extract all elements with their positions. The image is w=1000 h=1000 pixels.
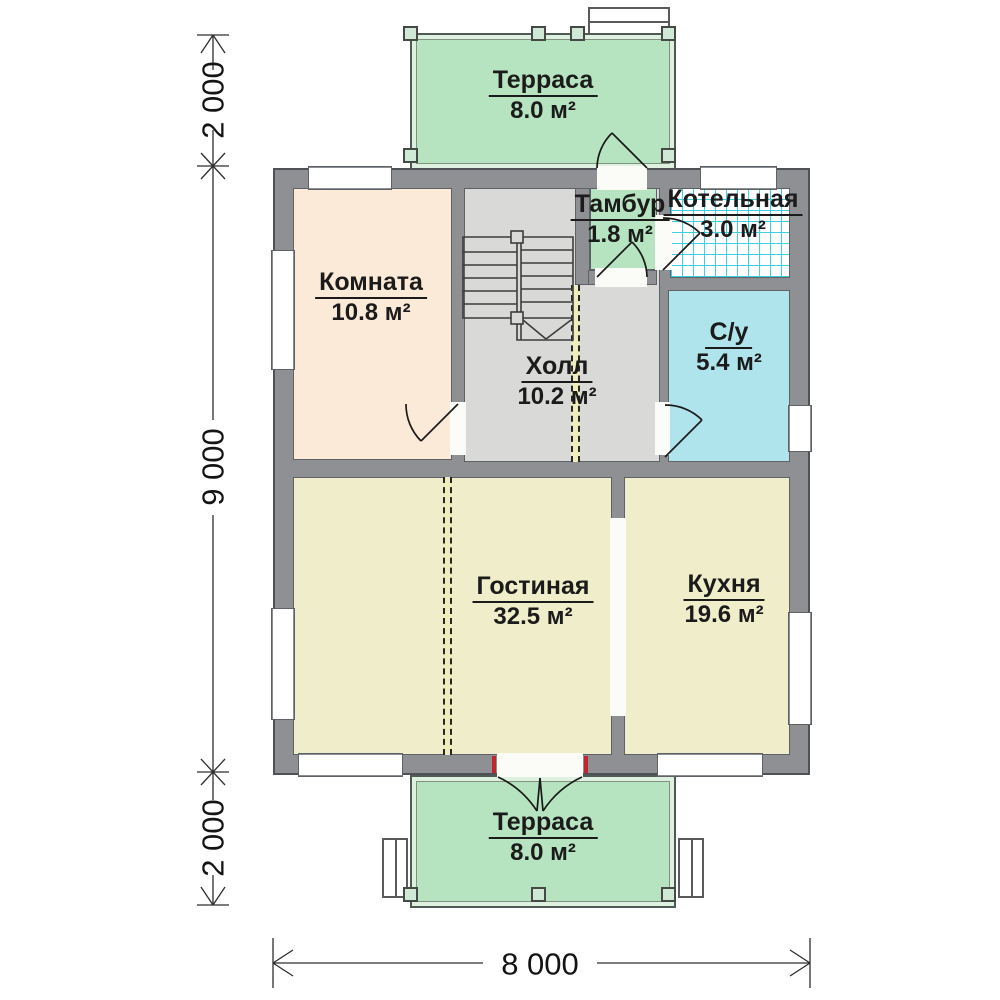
room-label-kuhnya: Кухня 19.6 м² <box>683 570 764 629</box>
partition-opening <box>610 518 626 716</box>
window <box>271 250 295 370</box>
room-area: 10.8 м² <box>315 300 427 327</box>
dimension-label-left-bottom: 2 000 <box>196 799 231 877</box>
dimension-left <box>197 35 229 905</box>
window <box>788 405 812 452</box>
dimension-label-left-middle: 9 000 <box>196 428 231 506</box>
room-area: 5.4 м² <box>696 350 762 377</box>
room-name: Терраса <box>489 66 598 97</box>
door-opening-gostinaya-terrace <box>497 753 583 777</box>
window <box>308 166 392 190</box>
room-area: 8.0 м² <box>489 98 598 125</box>
room-label-terrace-bottom: Терраса 8.0 м² <box>489 808 598 867</box>
terrace-post <box>661 148 676 163</box>
room-area: 8.0 м² <box>489 840 598 867</box>
door-opening-tambur-holl <box>595 268 647 287</box>
door-jamb-mark <box>492 756 496 773</box>
dimension-bottom <box>273 938 810 988</box>
room-name: Терраса <box>489 808 598 839</box>
room-name: Тамбур <box>571 190 670 221</box>
window <box>788 612 812 725</box>
room-name: Гостиная <box>473 572 594 603</box>
dimension-label-left-top: 2 000 <box>196 61 231 139</box>
room-label-holl: Холл 10.2 м² <box>517 352 596 411</box>
room-name: Котельная <box>664 185 803 216</box>
terrace-post <box>531 887 546 902</box>
room-label-gostinaya: Гостиная 32.5 м² <box>473 572 594 631</box>
room-label-kotelnaya: Котельная 3.0 м² <box>664 185 803 244</box>
door-jamb-mark <box>584 756 588 773</box>
room-name: С/у <box>706 318 753 349</box>
room-label-komnata: Комната 10.8 м² <box>315 268 427 327</box>
terrace-post <box>570 26 585 41</box>
room-label-terrace-top: Терраса 8.0 м² <box>489 66 598 125</box>
door-opening-holl-su <box>655 402 670 455</box>
dimension-label-bottom-width: 8 000 <box>501 947 579 982</box>
terrace-steps-right <box>678 838 704 898</box>
window <box>298 753 403 777</box>
room-area: 10.2 м² <box>517 384 596 411</box>
terrace-post <box>531 26 546 41</box>
room-area: 19.6 м² <box>683 602 764 629</box>
terrace-post <box>661 26 676 41</box>
dashed-wall-gostinaya <box>443 477 452 755</box>
room-name: Холл <box>522 352 593 383</box>
room-name: Кухня <box>683 570 764 601</box>
terrace-post <box>661 887 676 902</box>
room-area: 32.5 м² <box>473 604 594 631</box>
floor-plan: 2 000 9 000 2 000 8 000 Терраса 8.0 м² К… <box>0 0 1000 1000</box>
window <box>271 608 295 720</box>
entrance-steps-top <box>588 7 670 35</box>
room-label-su: С/у 5.4 м² <box>696 318 762 377</box>
terrace-post <box>403 148 418 163</box>
window <box>657 753 763 777</box>
room-name: Комната <box>315 268 427 299</box>
door-opening-holl-komnata <box>450 402 466 455</box>
room-label-tambur: Тамбур 1.8 м² <box>571 190 670 249</box>
room-area: 1.8 м² <box>571 222 670 249</box>
door-opening-terrace-tambur <box>597 166 647 190</box>
room-area: 3.0 м² <box>664 217 803 244</box>
terrace-post <box>403 26 418 41</box>
terrace-post <box>403 887 418 902</box>
